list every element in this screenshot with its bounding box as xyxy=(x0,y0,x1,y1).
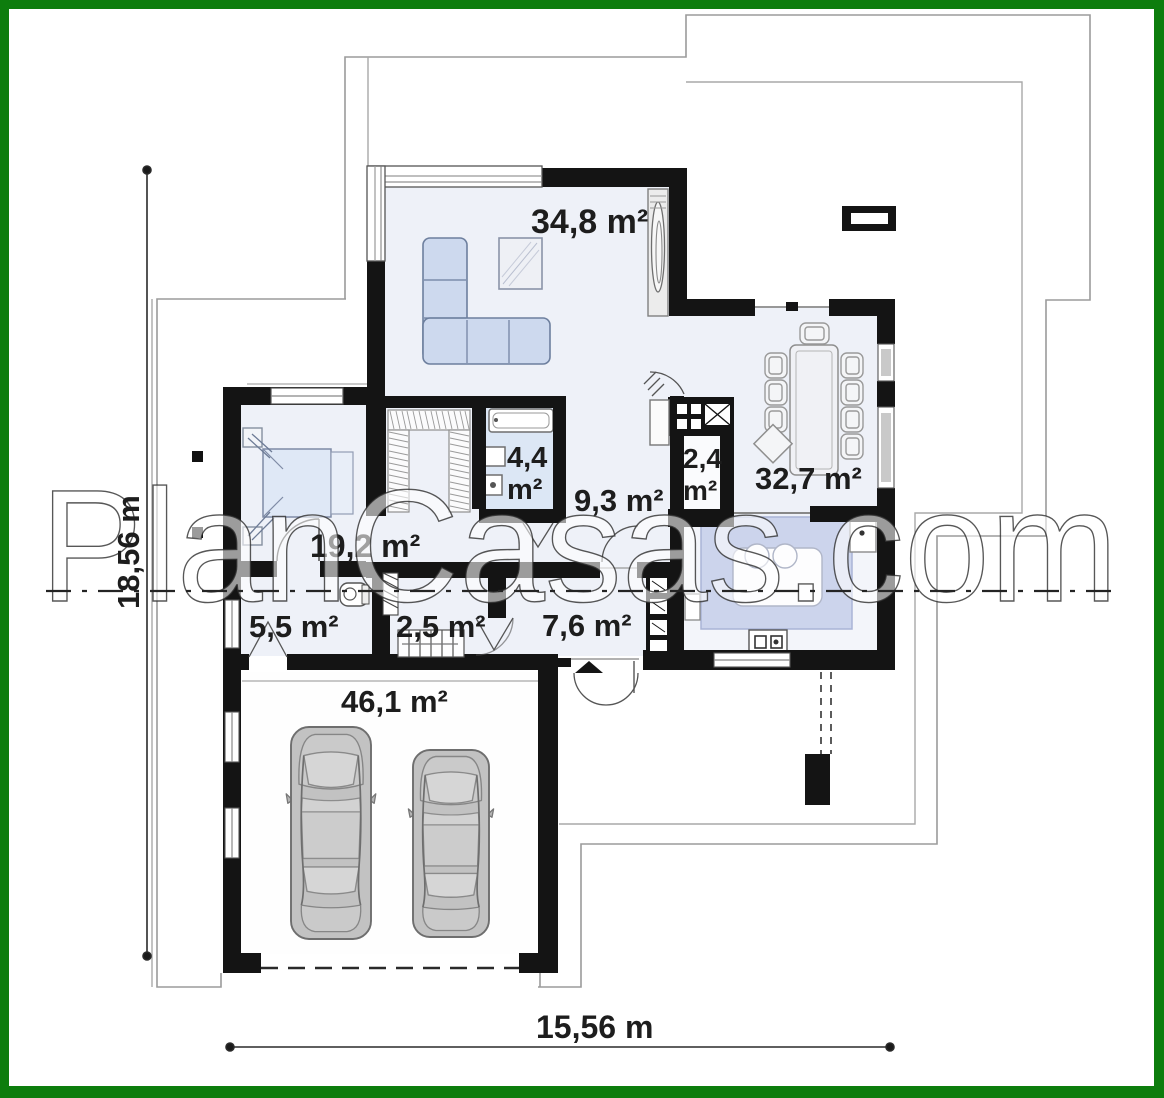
svg-text:46,1 m²: 46,1 m² xyxy=(341,684,448,719)
svg-text:PlanCasas.com: PlanCasas.com xyxy=(40,456,1118,635)
svg-text:15,56 m: 15,56 m xyxy=(536,1009,653,1045)
svg-text:34,8 m²: 34,8 m² xyxy=(531,203,648,241)
